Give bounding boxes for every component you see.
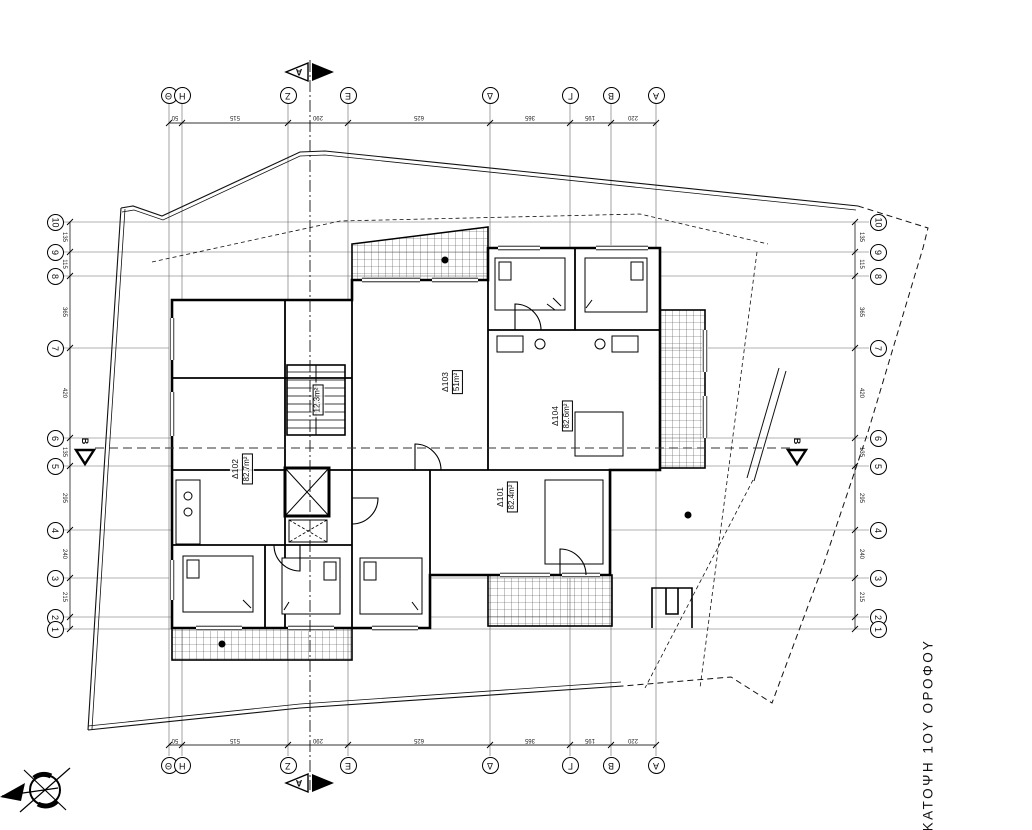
floor-plan-sheet: Θ Η Ζ Ε Δ Γ Β Α Θ Η Ζ Ε Δ Γ Β Α 10 9 8 7… [0, 0, 1032, 830]
grid-col-top-beta: Β [603, 87, 620, 104]
grid-row-left-8: 8 [47, 268, 64, 285]
retaining-wall-lines [747, 368, 786, 481]
grid-col-bottom-alpha: Α [648, 757, 665, 774]
dim-bottom-6: 220 [628, 737, 638, 743]
grid-col-bottom-zeta: Ζ [280, 757, 297, 774]
grid-row-right-7: 7 [870, 340, 887, 357]
dim-top-5: 195 [585, 114, 595, 120]
grid-row-right-5: 5 [870, 458, 887, 475]
apartment-id: Δ104 [551, 406, 560, 426]
apartment-area: 82.6m² [562, 401, 573, 432]
grid-col-bottom-gamma: Γ [562, 757, 579, 774]
grid-row-right-9: 9 [870, 244, 887, 261]
grid-row-left-4: 4 [47, 522, 64, 539]
grid-row-right-8: 8 [870, 268, 887, 285]
dim-top-3: 625 [414, 114, 424, 120]
apartment-area: 51m² [452, 370, 463, 394]
grid-row-left-7: 7 [47, 340, 64, 357]
dim-right-7: 215 [858, 592, 864, 602]
section-a-bottom-label: A [296, 778, 303, 788]
dim-bottom-3: 625 [414, 737, 424, 743]
section-b-left-label: B [80, 438, 90, 445]
grid-row-right-3: 3 [870, 570, 887, 587]
grid-col-bottom-eta: Η [174, 757, 191, 774]
grid-col-bottom-beta: Β [603, 757, 620, 774]
dim-right-4: 135 [858, 447, 864, 457]
dim-bottom-5: 195 [585, 737, 595, 743]
stairwell-area: 12.3m² [313, 385, 324, 416]
dim-top-6: 220 [628, 114, 638, 120]
floor-plan-drawing [0, 0, 1032, 830]
grid-row-left-1: 1 [47, 621, 64, 638]
dim-left-5: 295 [61, 493, 67, 503]
dim-left-2: 365 [61, 307, 67, 317]
grid-col-top-delta: Δ [482, 87, 499, 104]
dim-top-4: 365 [525, 114, 535, 120]
stairwell-area-label: 12.3m² [312, 383, 325, 418]
grid-row-right-4: 4 [870, 522, 887, 539]
grid-col-top-eta: Η [174, 87, 191, 104]
dim-bottom-1: 515 [230, 737, 240, 743]
grid-row-right-10: 10 [870, 214, 887, 231]
dim-left-6: 240 [61, 549, 67, 559]
dim-right-2: 365 [858, 307, 864, 317]
apartment-label-d101: Δ101 82.4m² [495, 480, 519, 515]
apartment-area: 82.4m² [507, 482, 518, 513]
grid-row-left-5: 5 [47, 458, 64, 475]
apartment-area: 82.7m² [242, 454, 253, 485]
apartment-id: Δ102 [231, 459, 240, 479]
drawing-title: ΚΑΤΟΨΗ 1ΟΥ ΟΡΟΦΟΥ [921, 639, 936, 830]
grid-col-top-epsilon: Ε [340, 87, 357, 104]
exterior-structure [652, 588, 692, 628]
elevator-icon [285, 468, 329, 516]
grid-row-left-6: 6 [47, 430, 64, 447]
dim-right-0: 135 [858, 232, 864, 242]
grid-col-bottom-delta: Δ [482, 757, 499, 774]
grid-col-top-gamma: Γ [562, 87, 579, 104]
dim-top-0: 50 [172, 114, 179, 120]
grid-row-left-10: 10 [47, 214, 64, 231]
apartment-id: Δ103 [441, 372, 450, 392]
dim-right-5: 295 [858, 493, 864, 503]
dim-left-1: 115 [61, 259, 67, 269]
dim-right-6: 240 [858, 549, 864, 559]
apartment-id: Δ101 [496, 487, 505, 507]
grid-col-bottom-epsilon: Ε [340, 757, 357, 774]
dim-left-0: 135 [61, 232, 67, 242]
north-arrow-icon [0, 768, 70, 812]
grid-row-right-1: 1 [870, 621, 887, 638]
section-a-top-label: A [296, 67, 303, 77]
dim-bottom-4: 365 [525, 737, 535, 743]
grid-row-right-6: 6 [870, 430, 887, 447]
grid-row-left-3: 3 [47, 570, 64, 587]
dim-left-7: 215 [61, 592, 67, 602]
apartment-label-d104: Δ104 82.6m² [550, 399, 574, 434]
dim-bottom-2: 290 [313, 737, 323, 743]
dim-left-3: 420 [61, 388, 67, 398]
dim-top-1: 515 [230, 114, 240, 120]
dim-bottom-0: 50 [172, 737, 179, 743]
grid-col-top-alpha: Α [648, 87, 665, 104]
dim-right-1: 115 [858, 259, 864, 269]
apartment-label-d102: Δ102 82.7m² [230, 452, 254, 487]
dim-top-2: 290 [313, 114, 323, 120]
section-b-right-label: B [792, 438, 802, 445]
dim-left-4: 135 [61, 447, 67, 457]
grid-row-left-9: 9 [47, 244, 64, 261]
grid-col-top-zeta: Ζ [280, 87, 297, 104]
apartment-label-d103: Δ103 51m² [440, 368, 464, 396]
dim-right-3: 420 [858, 388, 864, 398]
